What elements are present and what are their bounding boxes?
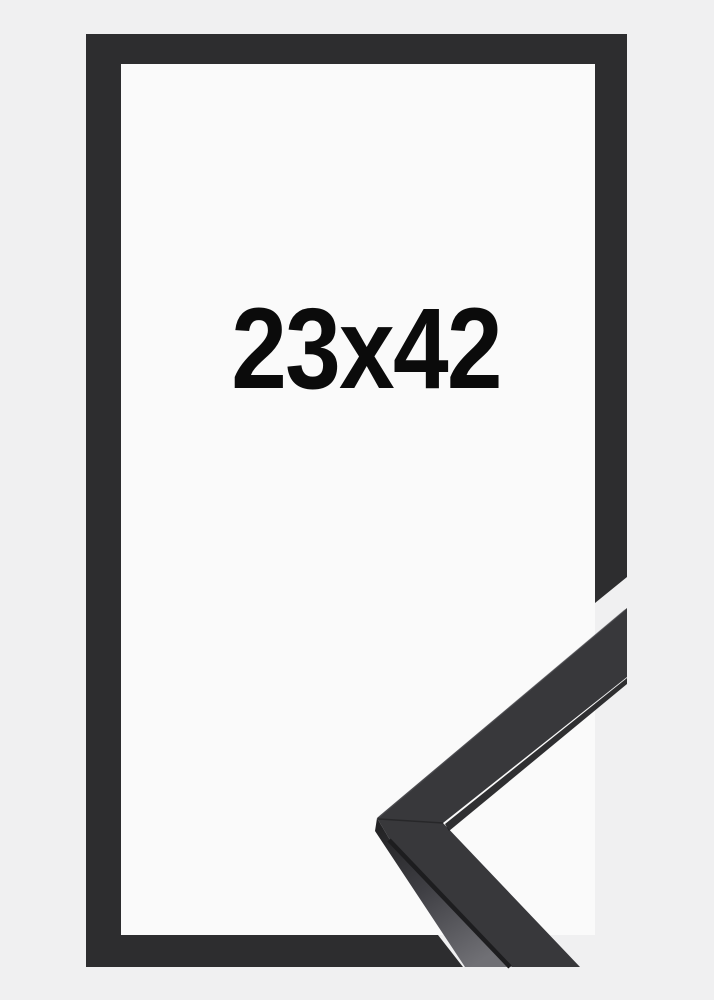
frame-scene bbox=[0, 0, 714, 1000]
picture-frame-product-photo: 23x42 bbox=[0, 0, 714, 1000]
size-label: 23x42 bbox=[153, 292, 579, 407]
frame-window bbox=[121, 64, 595, 935]
